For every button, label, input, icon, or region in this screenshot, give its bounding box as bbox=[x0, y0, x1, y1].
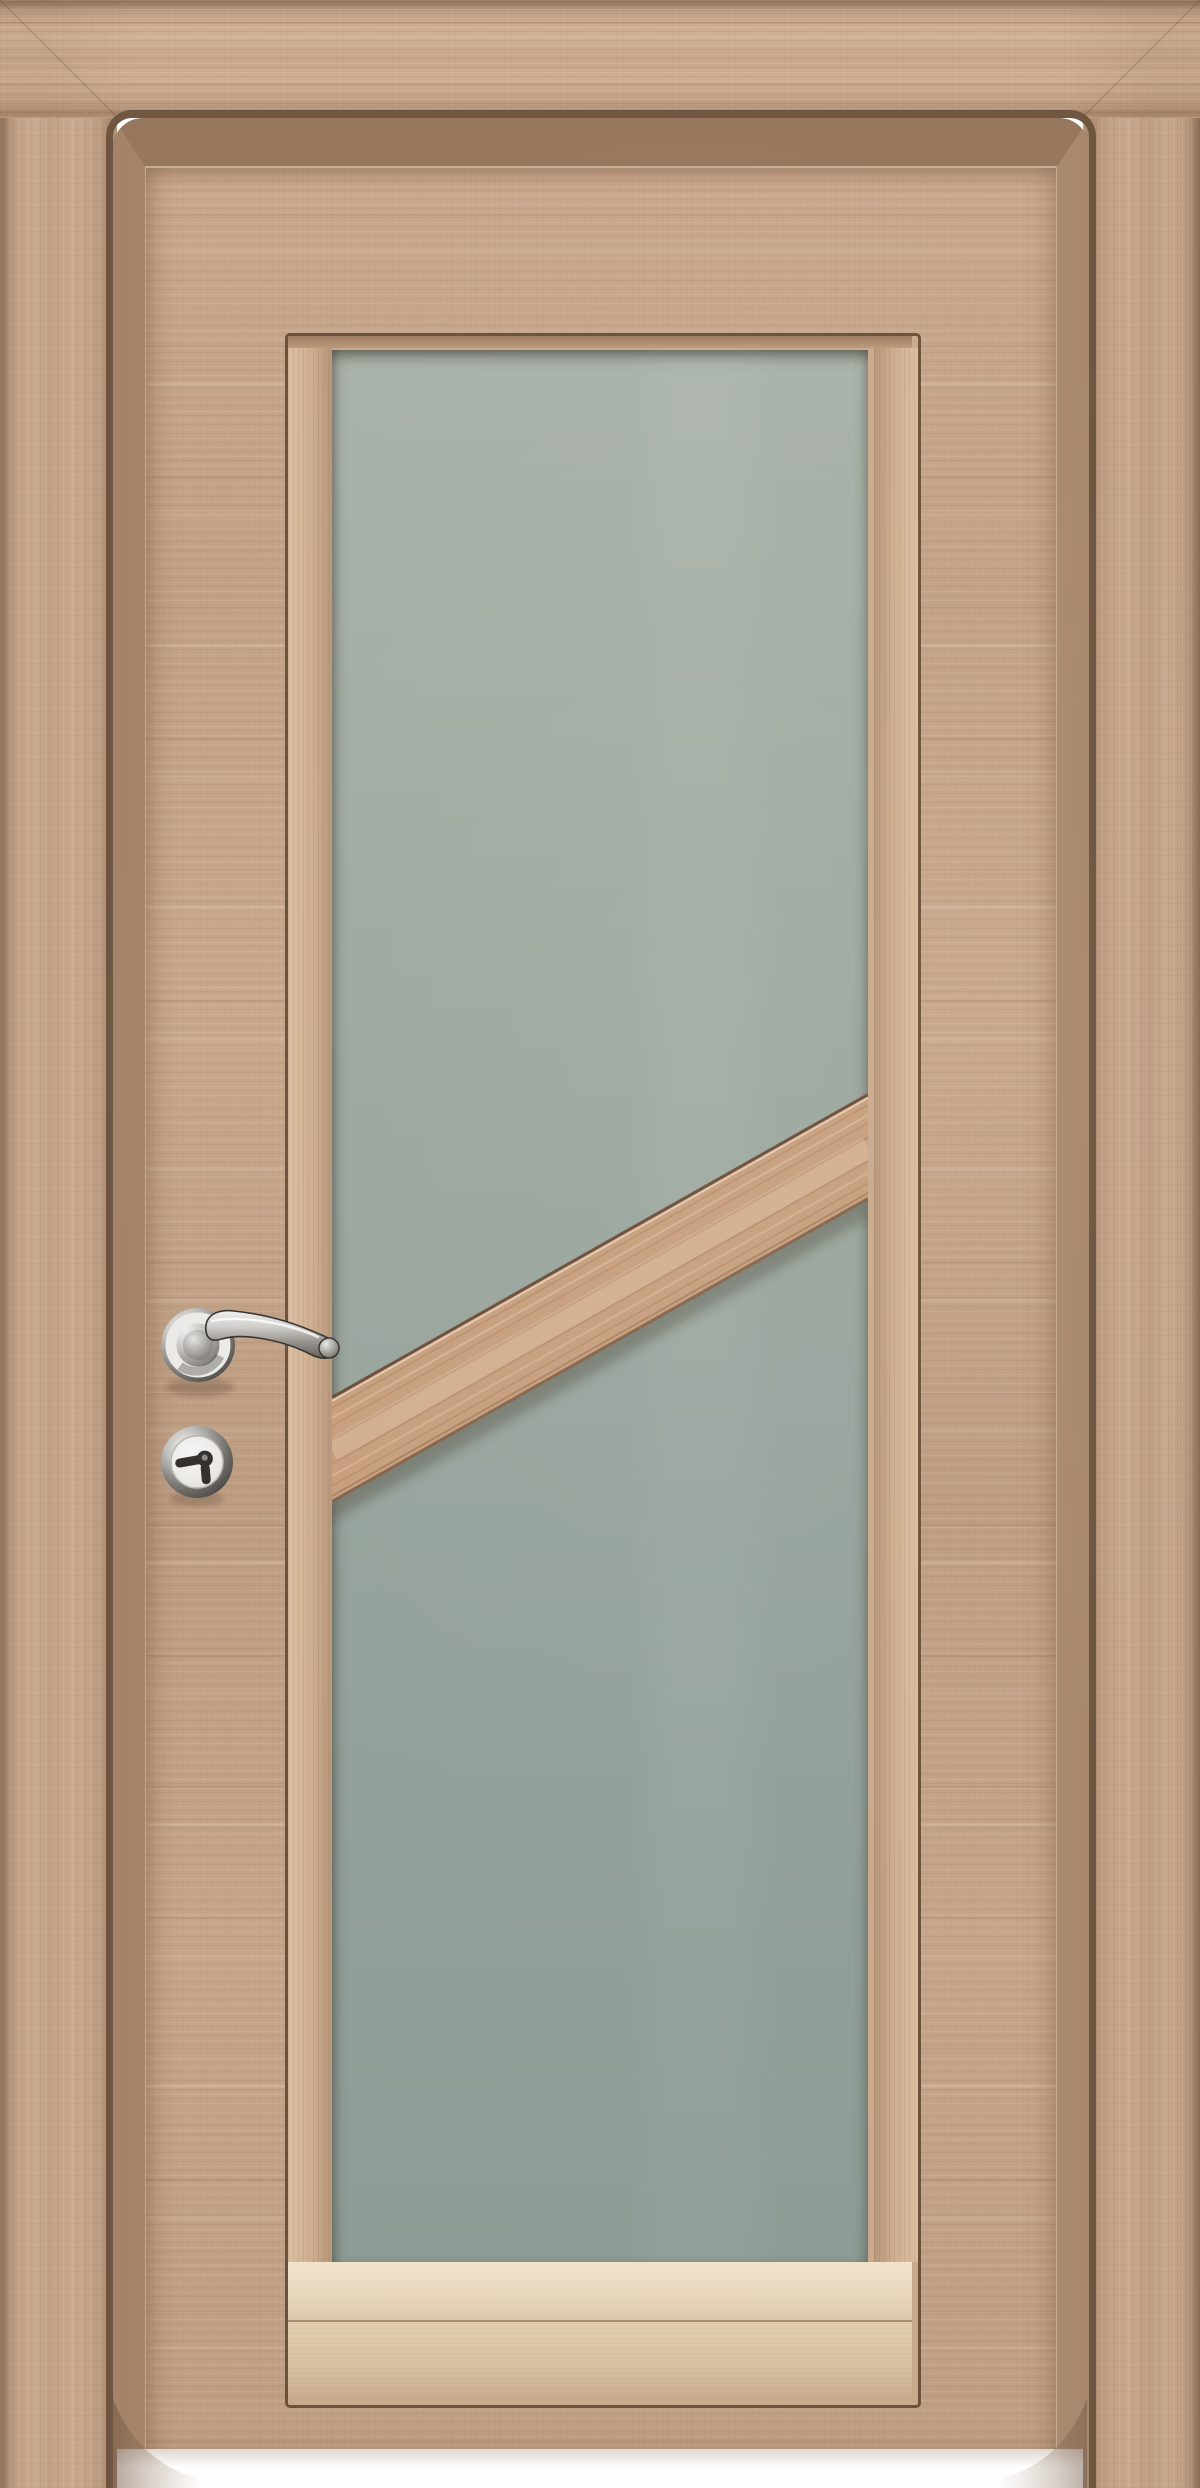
lever-handle bbox=[120, 1281, 360, 1411]
glass-panel-frame bbox=[285, 333, 921, 2408]
frosted-glass bbox=[332, 350, 868, 2262]
glazing-bead-top bbox=[288, 336, 912, 348]
casing-feet bbox=[0, 2380, 1200, 2488]
casing-foot-left bbox=[113, 2398, 202, 2488]
door-casing-left-leg bbox=[0, 0, 117, 2488]
privacy-lock bbox=[150, 1415, 244, 1509]
door-casing-right-leg bbox=[1083, 0, 1200, 2488]
glazing-bead-right bbox=[874, 348, 918, 2262]
handle-lever-tip bbox=[319, 1338, 339, 1358]
glazing-sill-highlight bbox=[288, 2262, 912, 2320]
door-product-photo: Light oak laminate interior door in step… bbox=[0, 0, 1200, 2488]
diagonal-glazing-bar bbox=[332, 350, 868, 2262]
casing-foot-right bbox=[998, 2398, 1087, 2488]
door-casing-head bbox=[0, 0, 1200, 118]
